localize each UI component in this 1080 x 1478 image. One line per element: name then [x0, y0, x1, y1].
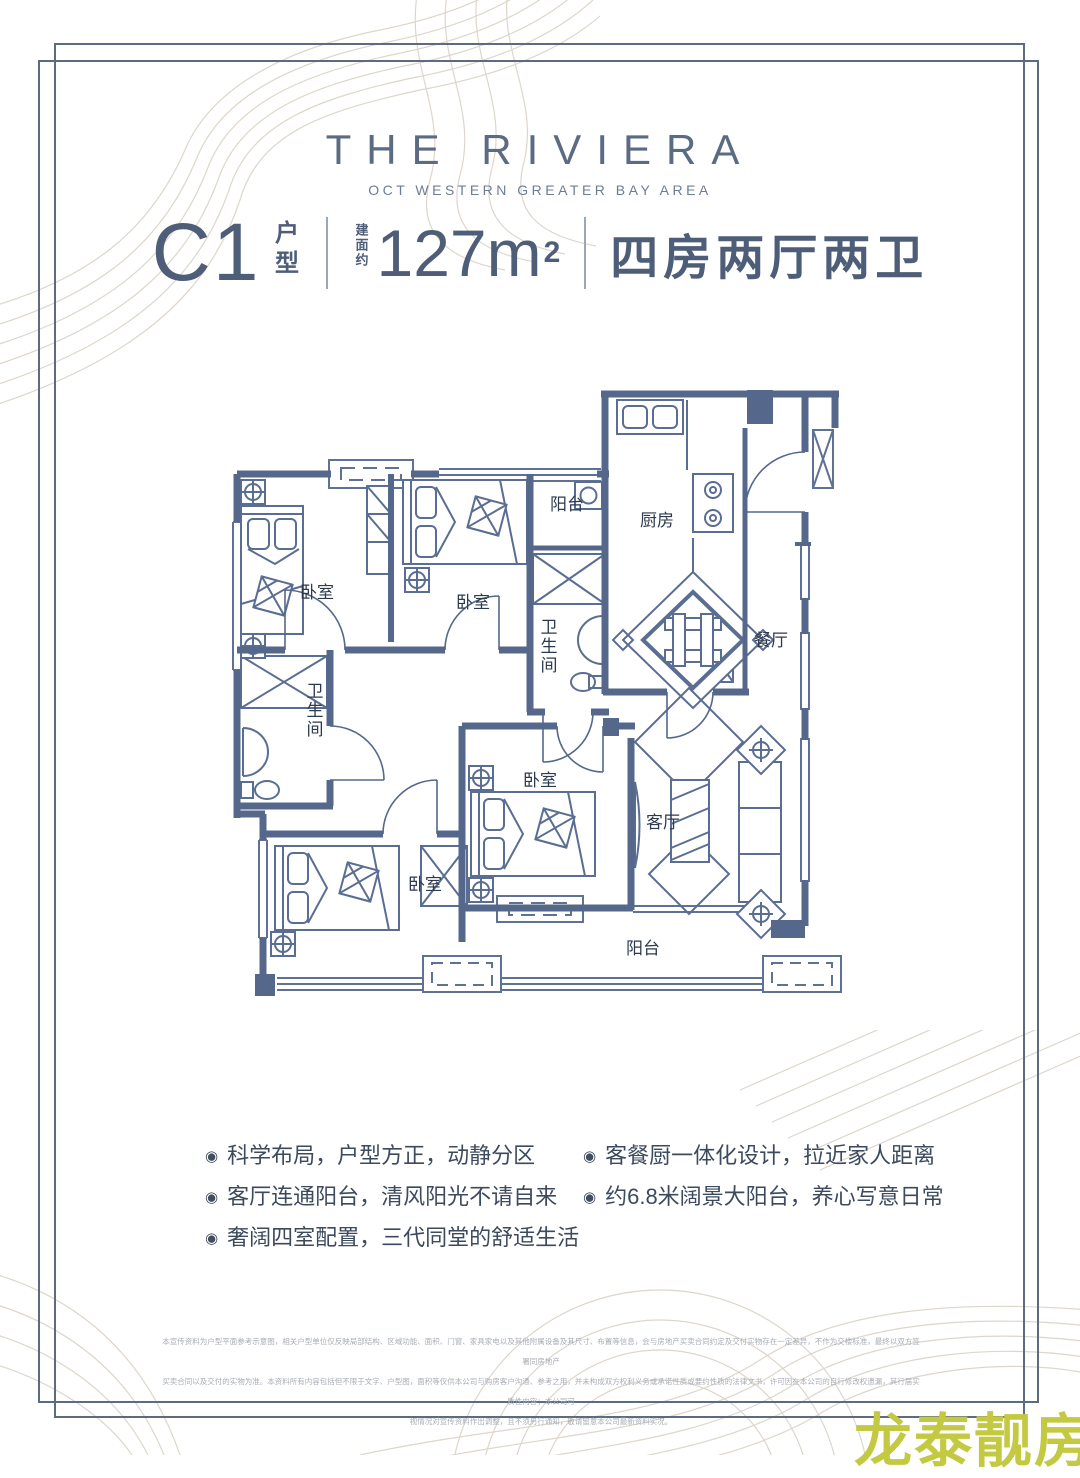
- bullet-icon: ◉: [583, 1148, 596, 1165]
- furniture: [241, 400, 785, 956]
- unit-code-label: 户型: [267, 220, 302, 286]
- bed-icon: [403, 480, 527, 564]
- toilet-icon: [241, 781, 279, 799]
- room-label-bedroom-2: 卧室: [456, 593, 490, 612]
- feature-item: ◉科学布局，户型方正，动静分区: [205, 1136, 579, 1177]
- feature-list-right: ◉客餐厨一体化设计，拉近家人距离 ◉约6.8米阔景大阳台，养心写意日常: [583, 1136, 944, 1218]
- feature-text: 客餐厨一体化设计，拉近家人距离: [605, 1143, 935, 1168]
- dining-table-icon: [613, 572, 773, 708]
- disclaimer: 本宣传资料为户型平面参考示意图，相关户型单位仅反映局部结构、区域功能、面积、门窗…: [160, 1332, 922, 1432]
- feature-list-left: ◉科学布局，户型方正，动静分区 ◉客厅连通阳台，清风阳光不请自来 ◉奢阔四室配置…: [205, 1136, 579, 1259]
- area-superscript: 2: [544, 236, 561, 270]
- feature-text: 科学布局，户型方正，动静分区: [227, 1143, 535, 1168]
- feature-item: ◉约6.8米阔景大阳台，养心写意日常: [583, 1177, 944, 1218]
- spec-divider: [584, 217, 586, 289]
- feature-text: 奢阔四室配置，三代同堂的舒适生活: [227, 1225, 579, 1250]
- nightstand-icon: [241, 480, 265, 504]
- feature-item: ◉客厅连通阳台，清风阳光不请自来: [205, 1177, 579, 1218]
- nightstand-icon: [469, 878, 493, 902]
- nightstand-icon: [271, 932, 295, 956]
- shower-icon: [533, 554, 605, 604]
- unit-spec-row: C1 户型 建面约 127m 2 四房两厅两卫: [0, 212, 1080, 294]
- unit-code: C1: [152, 212, 261, 294]
- nightstand-icon: [241, 634, 265, 658]
- room-label-kitchen: 厨房: [640, 511, 674, 530]
- washbasin-icon: [243, 728, 268, 776]
- washbasin-icon: [578, 616, 603, 664]
- bed-icon: [241, 506, 303, 634]
- layout-text: 四房两厅两卫: [610, 218, 928, 288]
- room-label-bedroom-4: 卧室: [523, 771, 557, 790]
- stove-icon: [693, 474, 733, 532]
- spec-divider: [326, 217, 328, 289]
- page-subtitle: OCT WESTERN GREATER BAY AREA: [0, 182, 1080, 198]
- bed-icon: [275, 846, 399, 930]
- floor-plan: 阳台 厨房 卧室 卧室 卫生间 餐厅 卫生间 卧室 卧室 客厅 阳台: [225, 382, 875, 1010]
- tv-icon: [635, 782, 640, 868]
- watermark-logo: 龙泰靓房: [854, 1394, 1080, 1478]
- room-label-balcony-top: 阳台: [550, 495, 584, 514]
- wardrobe-icon: [367, 486, 391, 574]
- toilet-icon: [571, 673, 603, 691]
- room-label-bathroom-2: 卫生间: [304, 682, 324, 739]
- feature-item: ◉奢阔四室配置，三代同堂的舒适生活: [205, 1218, 579, 1259]
- disclaimer-line: 本宣传资料为户型平面参考示意图，相关户型单位仅反映局部结构、区域功能、面积、门窗…: [160, 1332, 922, 1372]
- bed-icon: [471, 792, 595, 876]
- room-label-living: 客厅: [646, 813, 680, 832]
- bullet-icon: ◉: [205, 1189, 218, 1206]
- page-title: THE RIVIERA: [0, 126, 1080, 174]
- room-label-bathroom-1: 卫生间: [538, 618, 558, 675]
- room-label-dining: 餐厅: [754, 631, 788, 650]
- room-label-bedroom-1: 卧室: [300, 583, 334, 602]
- kitchen-sink-icon: [617, 400, 683, 434]
- disclaimer-line: 买卖合同以及交付的实物为准。本资料所有内容包括但不限于文字、户型图，面积等仅供本…: [160, 1372, 922, 1412]
- balcony-columns: [423, 956, 841, 992]
- disclaimer-line: 视情况对宣传资料作出调整，且不须另行通知，敬请留意本公司最新资料实况。: [160, 1412, 922, 1432]
- bullet-icon: ◉: [205, 1230, 218, 1247]
- nightstand-icon: [469, 766, 493, 790]
- area-value: 127m: [377, 220, 542, 286]
- bullet-icon: ◉: [205, 1148, 218, 1165]
- room-label-balcony-bottom: 阳台: [626, 939, 660, 958]
- area-prefix: 建面约: [352, 223, 371, 283]
- feature-text: 约6.8米阔景大阳台，养心写意日常: [605, 1184, 944, 1209]
- feature-text: 客厅连通阳台，清风阳光不请自来: [227, 1184, 557, 1209]
- room-label-bedroom-3: 卧室: [408, 875, 442, 894]
- bullet-icon: ◉: [583, 1189, 596, 1206]
- feature-item: ◉客餐厨一体化设计，拉近家人距离: [583, 1136, 944, 1177]
- nightstand-icon: [405, 568, 429, 592]
